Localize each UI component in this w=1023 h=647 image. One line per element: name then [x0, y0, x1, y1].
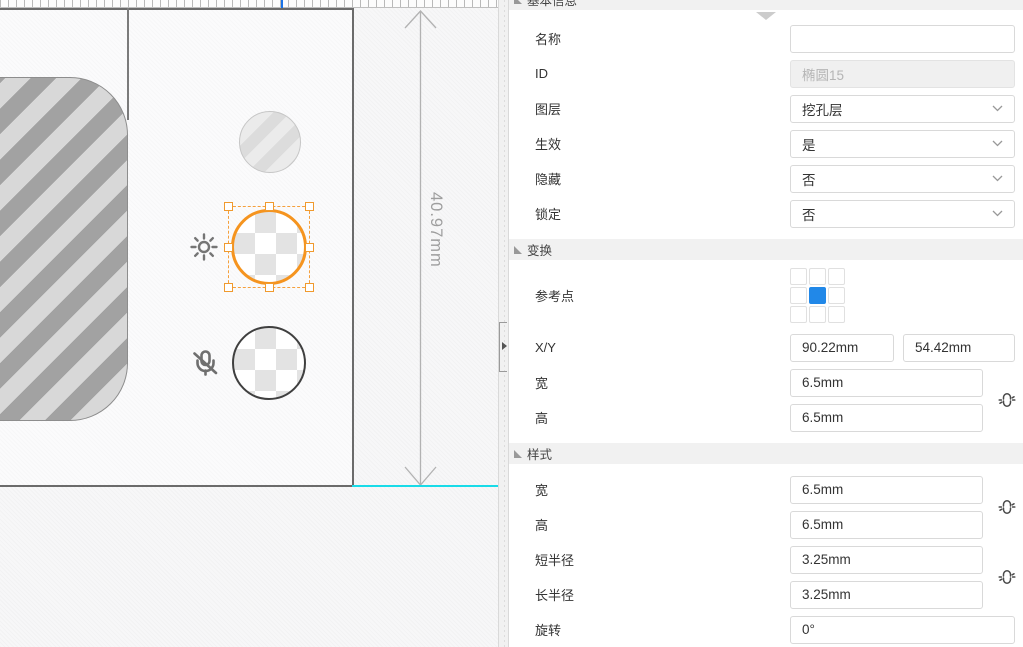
panel-splitter[interactable] — [498, 0, 509, 647]
horizontal-ruler — [0, 0, 498, 8]
long-radius-input[interactable] — [790, 581, 983, 609]
refpoint-cell-ne[interactable] — [828, 268, 845, 285]
chevron-down-icon — [992, 105, 1003, 112]
field-label-name: 名称 — [535, 29, 790, 48]
broken-link-icon[interactable] — [998, 390, 1016, 415]
field-label-style-width: 宽 — [535, 480, 790, 499]
triangle-expanded-icon — [514, 246, 522, 254]
field-row-long-radius: 长半径 — [509, 577, 1023, 612]
mic-hole-shape[interactable] — [232, 326, 306, 400]
resize-handle-n[interactable] — [265, 202, 274, 211]
field-row-layer: 图层 挖孔层 — [509, 91, 1023, 126]
resize-handle-ne[interactable] — [305, 202, 314, 211]
design-tool-window: 40.97mm 基本信息 名称 ID 图层 挖孔层 — [0, 0, 1023, 647]
field-label-long-radius: 长半径 — [535, 585, 790, 604]
broken-link-icon[interactable] — [998, 497, 1016, 522]
striped-circle-shape[interactable] — [239, 111, 301, 173]
field-row-locked: 锁定 否 — [509, 196, 1023, 231]
rotation-input[interactable] — [790, 616, 1015, 644]
refpoint-cell-n[interactable] — [809, 268, 826, 285]
resize-handle-nw[interactable] — [224, 202, 233, 211]
hidden-select[interactable]: 否 — [790, 165, 1015, 193]
refpoint-cell-s[interactable] — [809, 306, 826, 323]
refpoint-cell-w[interactable] — [790, 287, 807, 304]
field-row-name: 名称 — [509, 21, 1023, 56]
chevron-down-icon — [992, 140, 1003, 147]
triangle-expanded-icon — [514, 0, 522, 4]
panel-collapse-arrow[interactable] — [509, 12, 1023, 21]
arrow-down-icon — [756, 12, 776, 20]
refpoint-cell-nw[interactable] — [790, 268, 807, 285]
name-input[interactable] — [790, 25, 1015, 53]
section-title: 样式 — [527, 444, 552, 463]
mic-off-icon — [188, 347, 222, 386]
field-label-rotation: 旋转 — [535, 620, 790, 639]
field-label-width: 宽 — [535, 373, 790, 392]
field-label-refpoint: 参考点 — [535, 286, 790, 305]
panel-collapse-handle-icon[interactable] — [499, 322, 507, 372]
sun-icon — [190, 233, 218, 266]
resize-handle-sw[interactable] — [224, 283, 233, 292]
transform-width-input[interactable] — [790, 369, 983, 397]
broken-link-icon[interactable] — [998, 567, 1016, 592]
field-label-hidden: 隐藏 — [535, 169, 790, 188]
chevron-down-icon — [992, 210, 1003, 217]
field-row-effective: 生效 是 — [509, 126, 1023, 161]
cyan-guide-line — [352, 485, 498, 487]
style-radius-group: 短半径 长半径 — [509, 542, 1023, 612]
locked-select-value: 否 — [802, 204, 816, 224]
layer-select-value: 挖孔层 — [802, 99, 843, 119]
field-row-style-height: 高 — [509, 507, 1023, 542]
section-header-style[interactable]: 样式 — [509, 443, 1023, 464]
short-radius-input[interactable] — [790, 546, 983, 574]
section-title: 基本信息 — [527, 0, 577, 9]
field-row-width: 宽 — [509, 365, 1023, 400]
design-canvas[interactable]: 40.97mm — [0, 0, 498, 647]
field-label-style-height: 高 — [535, 515, 790, 534]
triangle-expanded-icon — [514, 450, 522, 458]
resize-handle-se[interactable] — [305, 283, 314, 292]
field-row-rotation: 旋转 — [509, 612, 1023, 647]
field-label-layer: 图层 — [535, 99, 790, 118]
dimension-label: 40.97mm — [426, 192, 445, 312]
reference-point-grid — [790, 268, 845, 323]
refpoint-cell-e[interactable] — [828, 287, 845, 304]
ruler-cursor-marker — [281, 0, 283, 8]
field-label-xy: X/Y — [535, 340, 790, 355]
field-row-short-radius: 短半径 — [509, 542, 1023, 577]
vertical-edge-line — [127, 8, 129, 120]
resize-handle-w[interactable] — [224, 243, 233, 252]
refpoint-cell-se[interactable] — [828, 306, 845, 323]
x-input[interactable] — [790, 334, 894, 362]
section-header-basic[interactable]: 基本信息 — [509, 0, 1023, 10]
y-input[interactable] — [903, 334, 1015, 362]
field-row-id: ID — [509, 56, 1023, 91]
field-label-effective: 生效 — [535, 134, 790, 153]
section-header-transform[interactable]: 变换 — [509, 239, 1023, 260]
selection-bounding-box — [228, 206, 310, 288]
field-row-xy: X/Y — [509, 330, 1023, 365]
transform-height-input[interactable] — [790, 404, 983, 432]
field-row-hidden: 隐藏 否 — [509, 161, 1023, 196]
field-label-short-radius: 短半径 — [535, 550, 790, 569]
transform-size-group: 宽 高 — [509, 365, 1023, 435]
layer-select[interactable]: 挖孔层 — [790, 95, 1015, 123]
effective-select-value: 是 — [802, 134, 816, 154]
refpoint-cell-sw[interactable] — [790, 306, 807, 323]
field-row-refpoint: 参考点 — [509, 260, 1023, 330]
id-input — [790, 60, 1015, 88]
field-label-height: 高 — [535, 408, 790, 427]
resize-handle-s[interactable] — [265, 283, 274, 292]
field-row-style-width: 宽 — [509, 472, 1023, 507]
properties-panel: 基本信息 名称 ID 图层 挖孔层 生效 是 — [509, 0, 1023, 647]
refpoint-cell-center[interactable] — [809, 287, 826, 304]
style-height-input[interactable] — [790, 511, 983, 539]
section-title: 变换 — [527, 240, 552, 259]
effective-select[interactable]: 是 — [790, 130, 1015, 158]
style-width-input[interactable] — [790, 476, 983, 504]
field-label-locked: 锁定 — [535, 204, 790, 223]
resize-handle-e[interactable] — [305, 243, 314, 252]
hatched-cut-region[interactable] — [0, 77, 128, 421]
chevron-down-icon — [992, 175, 1003, 182]
field-label-id: ID — [535, 66, 790, 81]
field-row-height: 高 — [509, 400, 1023, 435]
locked-select[interactable]: 否 — [790, 200, 1015, 228]
style-size-group: 宽 高 — [509, 472, 1023, 542]
hidden-select-value: 否 — [802, 169, 816, 189]
